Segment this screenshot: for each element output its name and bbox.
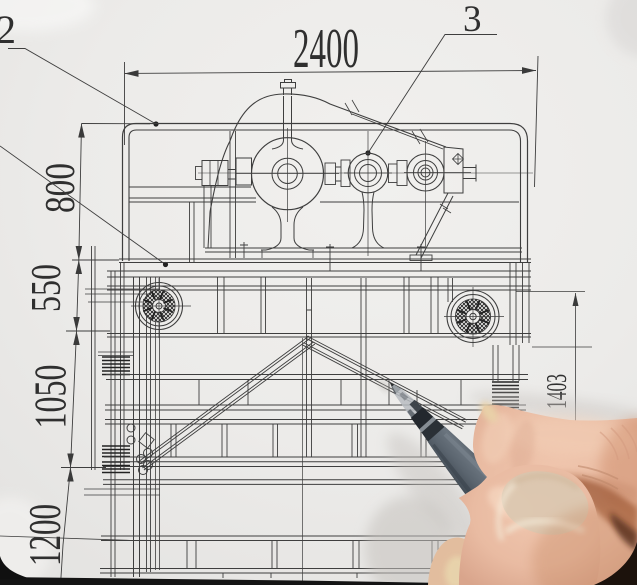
svg-text:800: 800 <box>38 163 84 213</box>
svg-text:3: 3 <box>463 0 482 40</box>
svg-text:2400: 2400 <box>293 18 359 80</box>
svg-text:550: 550 <box>24 264 70 312</box>
svg-text:1200: 1200 <box>19 504 70 566</box>
svg-text:2: 2 <box>0 7 16 52</box>
svg-text:1050: 1050 <box>25 365 76 429</box>
